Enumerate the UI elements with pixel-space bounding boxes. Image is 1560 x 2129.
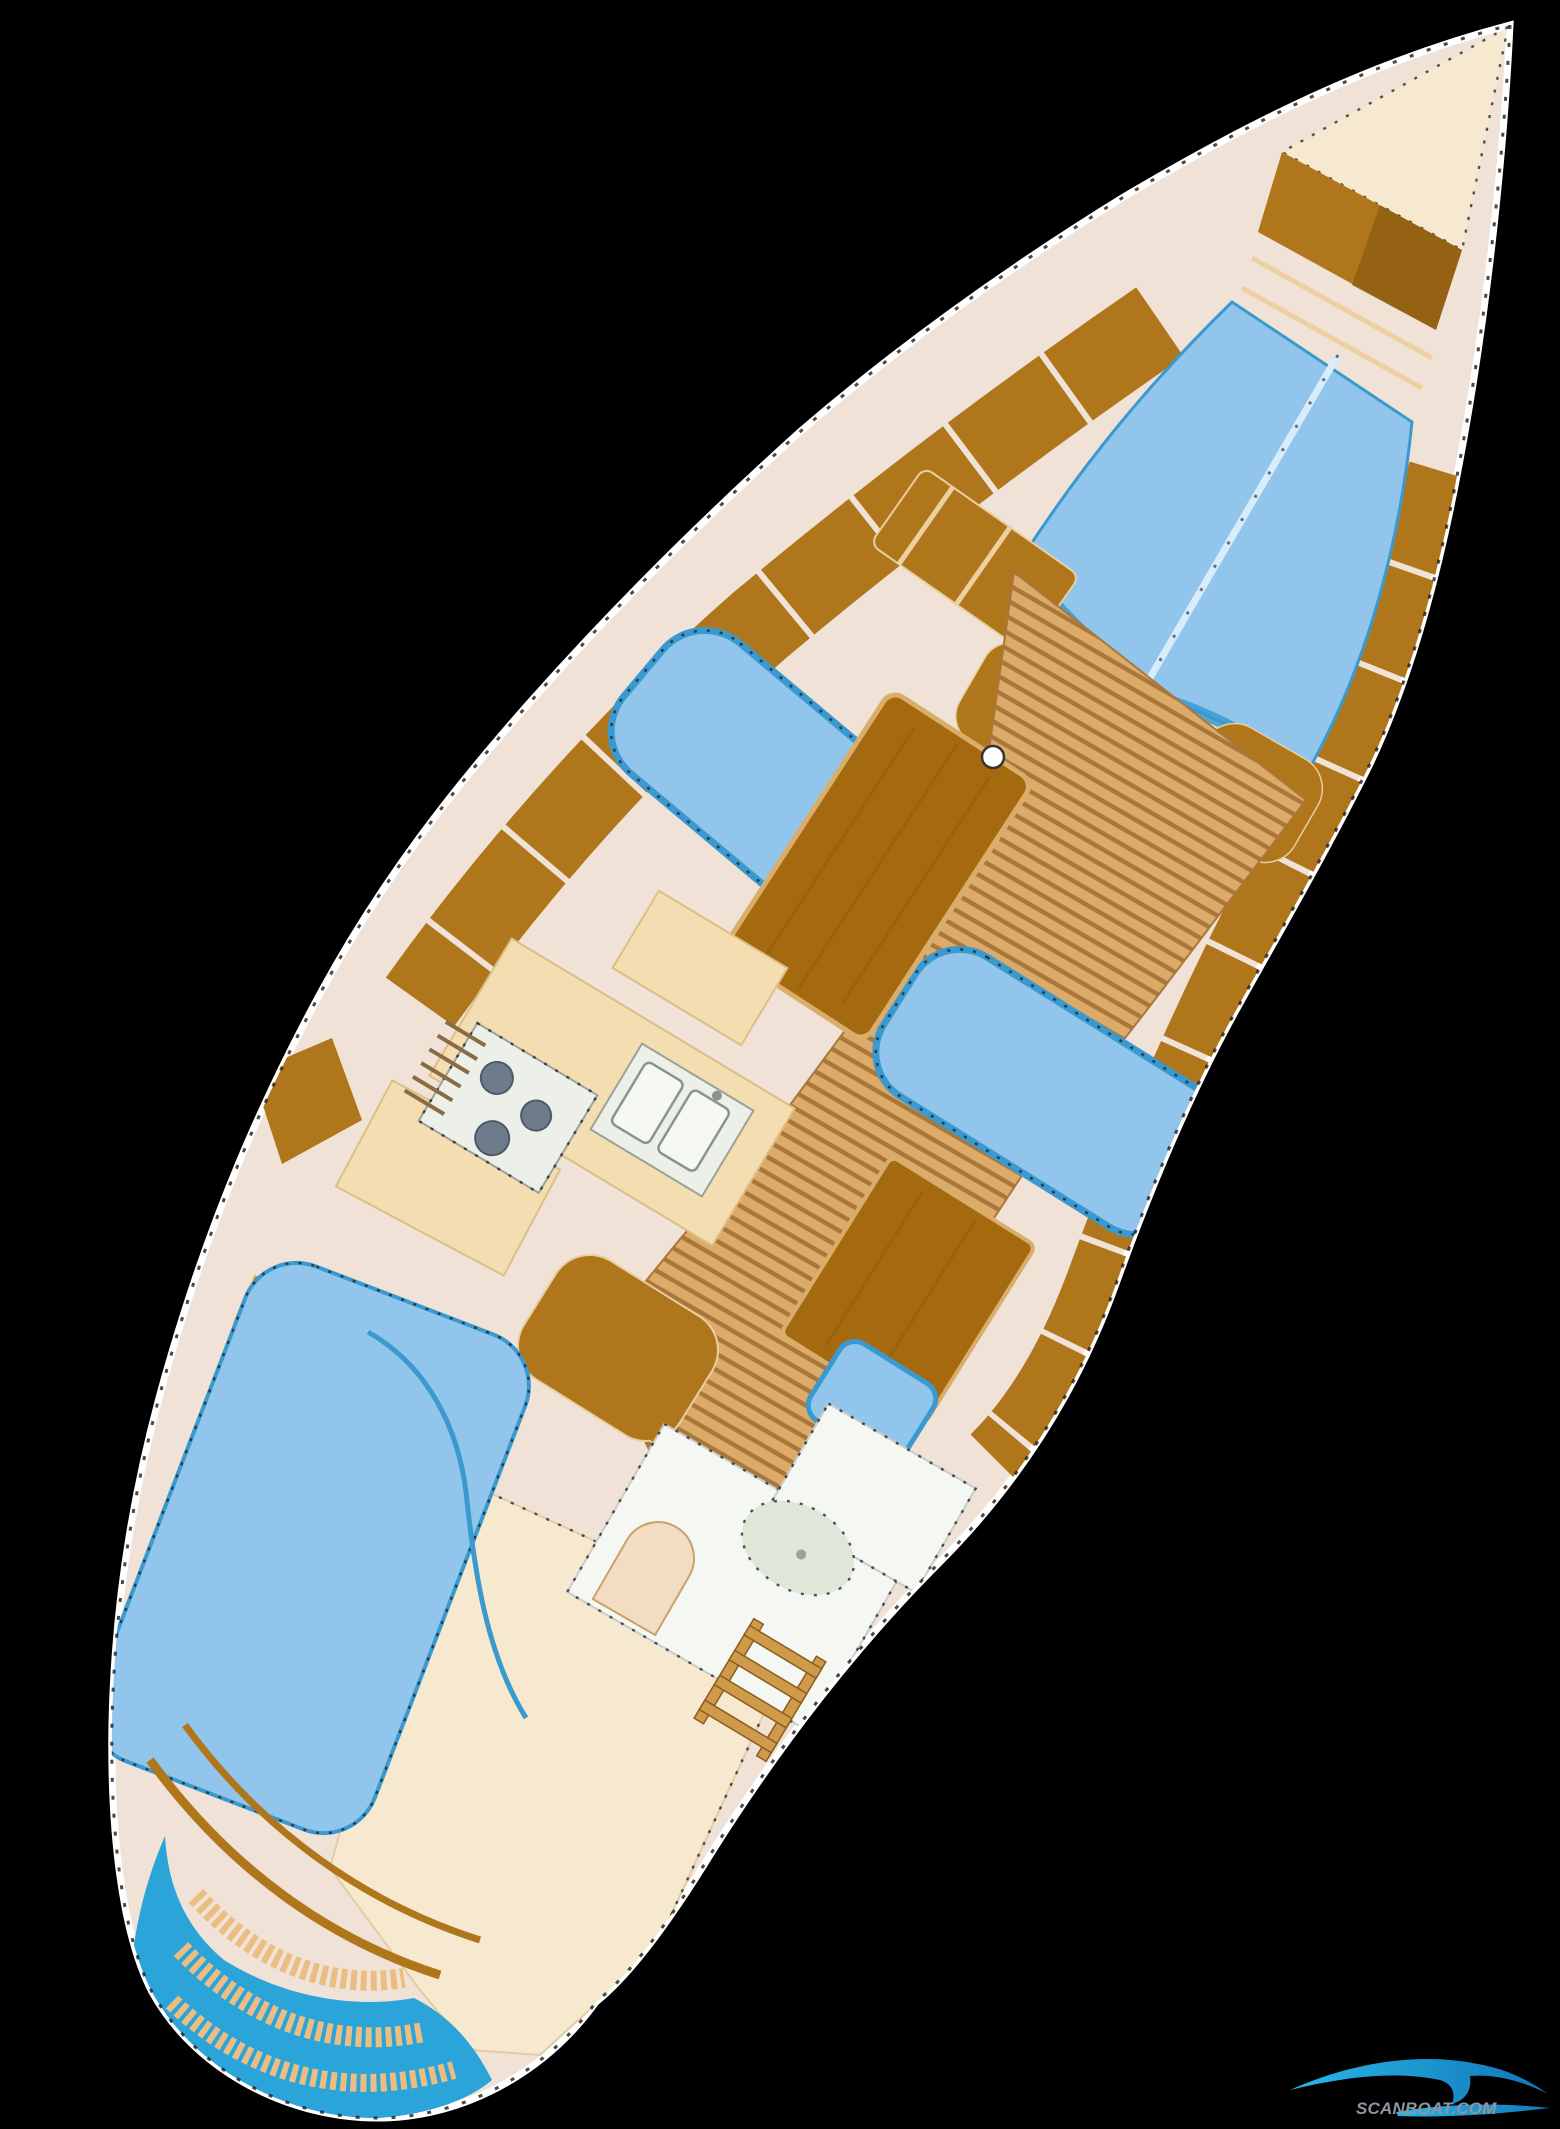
watermark: SCANBOAT.COM [1290, 2059, 1550, 2118]
wave-logo-icon [1290, 2059, 1548, 2104]
watermark-text: SCANBOAT.COM [1356, 2099, 1497, 2118]
floor-plan-canvas: SCANBOAT.COM [0, 0, 1560, 2129]
boat-floor-plan: SCANBOAT.COM [0, 0, 1560, 2129]
mast-step [982, 746, 1004, 768]
